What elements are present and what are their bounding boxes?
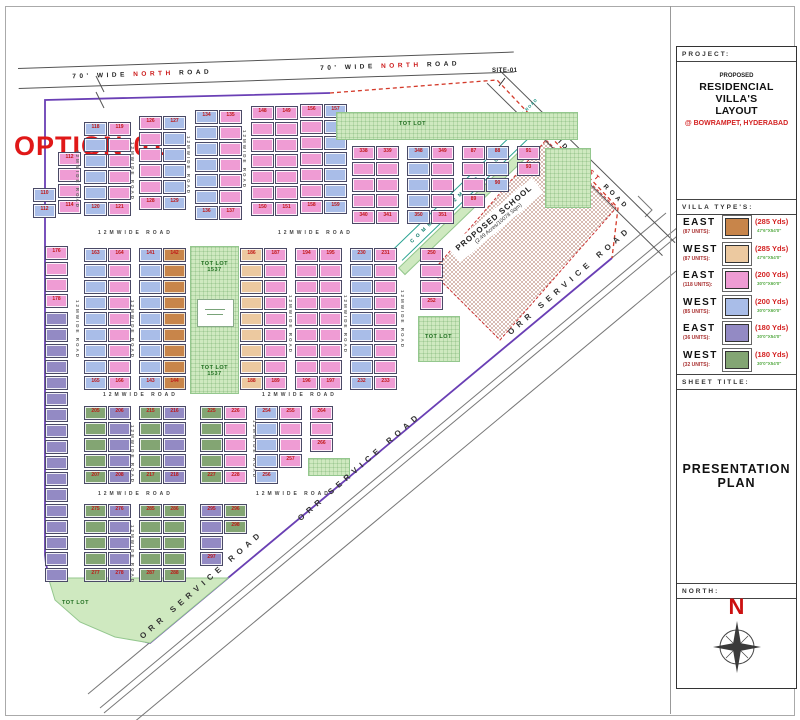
internal-road-label: 12MWIDE ROAD — [98, 491, 173, 497]
villa-plot-pink — [275, 138, 298, 152]
legend-row: WEST(85 UNITS):(200 Yds)30'0"X60'0" — [677, 295, 796, 322]
legend-direction: WEST — [683, 244, 718, 255]
villa-plot-pink: 228 — [224, 470, 247, 484]
plot-number: 277 — [85, 570, 106, 576]
plot-number: 250 — [421, 250, 442, 256]
legend-yards: (285 Yds) — [755, 217, 788, 226]
villa-plot-purple: 218 — [163, 470, 186, 484]
villa-plot-orange — [163, 296, 186, 310]
villa-plot-green: 217 — [139, 470, 162, 484]
tot-lot-1537-label-bottom: TOT LOT1537 — [191, 365, 238, 377]
villa-plot-pink — [108, 328, 131, 342]
villa-plot-blue: 134 — [195, 110, 218, 124]
villa-plot-pink — [374, 312, 397, 326]
villa-plot-green — [163, 552, 186, 566]
villa-plot-tan — [240, 264, 263, 278]
villa-plot-blue — [163, 164, 186, 178]
plot-number: 91 — [518, 148, 539, 154]
villa-plot-blue — [407, 178, 430, 192]
villa-plot-blue — [255, 438, 278, 452]
villa-plot-green — [163, 536, 186, 550]
north-road-label-2: 70' WIDE NORTH ROAD — [320, 60, 460, 72]
villa-plot-blue — [84, 344, 107, 358]
plot-number: 129 — [164, 198, 185, 204]
villa-plot-pink — [251, 170, 274, 184]
villa-plot-purple — [45, 552, 68, 566]
villa-plot-green — [139, 438, 162, 452]
villa-plot-purple: 208 — [108, 470, 131, 484]
villa-plot-blue — [139, 360, 162, 374]
villa-plot-pink — [139, 132, 162, 146]
villa-plot-orange: 142 — [163, 248, 186, 262]
internal-road-label-vertical: 12MWIDE ROAD — [130, 425, 135, 484]
villa-plot-pink: 158 — [300, 200, 323, 214]
plot-number: 298 — [225, 522, 246, 528]
villa-plot-pink — [300, 120, 323, 134]
plot-number: 275 — [85, 506, 106, 512]
plot-number: 195 — [320, 250, 341, 256]
villa-plot-green — [200, 438, 223, 452]
villa-plot-purple — [45, 440, 68, 454]
villa-plot-green — [139, 552, 162, 566]
villa-plot-pink — [300, 184, 323, 198]
villa-plot-pink: 126 — [139, 116, 162, 130]
legend-direction: WEST — [683, 297, 718, 308]
villa-plot-green — [139, 454, 162, 468]
villa-plot-blue — [139, 264, 162, 278]
villa-plot-purple — [200, 520, 223, 534]
villa-plot-pink: 178 — [45, 294, 68, 308]
villa-plot-purple — [45, 376, 68, 390]
villa-plot-blue: 256 — [255, 470, 278, 484]
villa-plot-green — [84, 422, 107, 436]
villa-plot-pink — [224, 438, 247, 452]
villa-plot-pink — [219, 158, 242, 172]
villa-plot-green: 225 — [200, 406, 223, 420]
villa-plot-pink: 151 — [275, 202, 298, 216]
legend-units: (87 UNITS): — [683, 229, 710, 235]
villa-plot-pink — [374, 280, 397, 294]
plot-number: 231 — [375, 250, 396, 256]
plot-number: 159 — [325, 202, 346, 208]
plot-number: 276 — [109, 506, 130, 512]
villa-plot-blue — [324, 184, 347, 198]
plot-number: 127 — [164, 118, 185, 124]
tot-lot-label: TOT LOT — [399, 121, 426, 127]
legend-yards: (285 Yds) — [755, 244, 788, 253]
legend-swatch — [725, 271, 749, 289]
plot-number: 151 — [276, 204, 297, 210]
villa-plot-pink — [462, 178, 485, 192]
plot-number: 165 — [85, 378, 106, 384]
villa-plot-pink — [108, 186, 131, 200]
villa-plot-pink: 91 — [517, 146, 540, 160]
villa-plot-blue — [350, 360, 373, 374]
legend-yards: (180 Yds) — [755, 323, 788, 332]
legend-swatch — [725, 298, 749, 316]
road-name-part: NORTH — [381, 62, 422, 70]
plot-number: 350 — [408, 212, 429, 218]
sheet-title: PRESENTATION PLAN — [677, 462, 796, 490]
villa-plot-pink — [319, 344, 342, 358]
legend-yards: (200 Yds) — [755, 270, 788, 279]
villa-plot-pink — [374, 360, 397, 374]
legend-yards: (180 Yds) — [755, 350, 788, 359]
villa-plot-green: 298 — [224, 520, 247, 534]
plot-number: 119 — [109, 124, 130, 130]
plot-number: 338 — [353, 148, 374, 154]
villa-plot-purple: 295 — [200, 504, 223, 518]
villa-plot-pink — [251, 138, 274, 152]
tot-lot-bottom-label: TOT LOT — [62, 600, 89, 606]
road-name-part: ROAD — [174, 69, 213, 77]
legend-direction: EAST — [683, 217, 716, 228]
villa-plot-blue: 127 — [163, 116, 186, 130]
villa-plot-orange — [163, 328, 186, 342]
villa-plot-green — [84, 520, 107, 534]
road-name-part: ROAD — [422, 60, 461, 68]
villa-plot-green — [200, 422, 223, 436]
villa-plot-pink: 87 — [462, 146, 485, 160]
villa-plot-purple — [45, 536, 68, 550]
legend-dimensions: 30'0"X54'0" — [757, 361, 781, 366]
internal-road-label-vertical: 12MWIDE ROAD — [400, 290, 405, 349]
title-block: PROJECT: PROPOSED RESIDENCIAL VILLA'S LA… — [676, 46, 797, 689]
plot-number: 149 — [276, 108, 297, 114]
plot-number: 228 — [225, 472, 246, 478]
plot-number: 254 — [256, 408, 277, 414]
villa-plot-tan: 188 — [240, 376, 263, 390]
villa-types-label: VILLA TYPE'S: — [677, 199, 796, 215]
plot-number: 156 — [301, 106, 322, 112]
villa-plot-green: 207 — [84, 470, 107, 484]
villa-plot-pink: 166 — [108, 376, 131, 390]
villa-plot-pink: 189 — [264, 376, 287, 390]
villa-plot-pink — [108, 264, 131, 278]
villa-plot-purple — [108, 536, 131, 550]
villa-plot-blue — [350, 280, 373, 294]
villa-plot-blue — [84, 264, 107, 278]
plot-number: 217 — [140, 472, 161, 478]
plot-number: 215 — [140, 408, 161, 414]
villa-plot-blue: 112 — [33, 204, 56, 218]
plot-number: 286 — [164, 506, 185, 512]
villa-plot-purple — [45, 312, 68, 326]
villa-plot-purple — [45, 328, 68, 342]
villa-plot-pink: 135 — [219, 110, 242, 124]
legend-units: (118 UNITS): — [683, 282, 712, 288]
plot-number: 340 — [353, 212, 374, 218]
villa-plot-blue — [195, 190, 218, 204]
villa-plot-green — [163, 520, 186, 534]
legend-swatch — [725, 351, 749, 369]
plot-number: 233 — [375, 378, 396, 384]
plot-number: 257 — [280, 456, 301, 462]
villa-plot-blue — [139, 312, 162, 326]
villa-plot-pink — [219, 174, 242, 188]
villa-plot-blue — [195, 142, 218, 156]
villa-plot-purple — [108, 438, 131, 452]
villa-plot-blue — [84, 280, 107, 294]
compass-n-letter: N — [677, 597, 796, 617]
legend-row: EAST(36 UNITS):(180 Yds)30'0"X54'0" — [677, 321, 796, 348]
villa-plot-purple — [45, 568, 68, 582]
internal-road-label-vertical: 12MWIDE ROAD — [252, 420, 257, 479]
villa-plot-blue: 254 — [255, 406, 278, 420]
villa-plot-blue — [84, 296, 107, 310]
villa-plot-pink: 187 — [264, 248, 287, 262]
plot-number: 208 — [109, 472, 130, 478]
plot-number: 296 — [225, 506, 246, 512]
legend-swatch — [725, 218, 749, 236]
villa-plot-pink: 233 — [374, 376, 397, 390]
villa-plot-blue — [350, 264, 373, 278]
legend-dimensions: 47'6"X54'0" — [757, 255, 781, 260]
plot-number: 266 — [311, 440, 332, 446]
villa-plot-pink — [420, 264, 443, 278]
plot-number: 88 — [487, 148, 508, 154]
villa-plot-pink: 89 — [462, 194, 485, 208]
plot-number: 351 — [432, 212, 453, 218]
villa-plot-pink: 231 — [374, 248, 397, 262]
plot-number: 339 — [377, 148, 398, 154]
plot-number: 230 — [351, 250, 372, 256]
villa-plot-tan — [240, 280, 263, 294]
villa-plot-pink — [319, 280, 342, 294]
villa-plot-pink — [251, 154, 274, 168]
villa-plot-pink — [264, 360, 287, 374]
villa-plot-pink — [295, 264, 318, 278]
plot-number: 144 — [164, 378, 185, 384]
villa-plot-blue — [84, 138, 107, 152]
villa-plot-blue: 118 — [84, 122, 107, 136]
villa-plot-pink: 338 — [352, 146, 375, 160]
villa-plot-purple — [45, 392, 68, 406]
villa-plot-pink — [275, 170, 298, 184]
plot-number: 205 — [85, 408, 106, 414]
villa-plot-pink: 128 — [139, 196, 162, 210]
plot-number: 136 — [196, 208, 217, 214]
tot-lot-1537-label-top: TOT LOT1537 — [191, 261, 238, 273]
legend-row: EAST(87 UNITS):(285 Yds)47'6"X54'0" — [677, 215, 796, 242]
villa-plot-purple — [45, 360, 68, 374]
project-label: PROJECT: — [677, 47, 796, 62]
villa-plot-pink — [108, 360, 131, 374]
villa-plot-green: 285 — [139, 504, 162, 518]
internal-road-label-vertical: 12MWIDE ROAD — [186, 136, 191, 195]
plot-number: 135 — [220, 112, 241, 118]
villa-plot-pink: 250 — [420, 248, 443, 262]
villa-plot-pink — [376, 178, 399, 192]
villa-plot-pink — [319, 328, 342, 342]
villa-plot-pink — [264, 264, 287, 278]
internal-road-label-vertical: 12MWIDE ROAD — [75, 300, 80, 359]
plot-number: 216 — [164, 408, 185, 414]
villa-plot-blue — [195, 174, 218, 188]
villa-plot-orange — [163, 360, 186, 374]
villa-plot-blue — [139, 296, 162, 310]
villa-plot-pink — [352, 194, 375, 208]
villa-plot-blue — [407, 162, 430, 176]
villa-plot-pink: 341 — [376, 210, 399, 224]
villa-plot-pink — [431, 194, 454, 208]
villa-plot-blue — [84, 360, 107, 374]
plot-number: 137 — [220, 208, 241, 214]
plot-number: 285 — [140, 506, 161, 512]
villa-plot-pink: 257 — [279, 454, 302, 468]
villa-plot-purple — [163, 454, 186, 468]
legend-direction: EAST — [683, 323, 716, 334]
villa-plot-blue: 88 — [486, 146, 509, 160]
villa-plot-pink — [295, 344, 318, 358]
villa-plot-pink — [300, 168, 323, 182]
plot-number: 227 — [201, 472, 222, 478]
villa-plot-pink — [376, 194, 399, 208]
villa-plot-blue: 141 — [139, 248, 162, 262]
villa-plot-blue — [84, 328, 107, 342]
plot-number: 278 — [109, 570, 130, 576]
project-location: @ BOWRAMPET, HYDERABAD — [677, 120, 796, 127]
villa-plot-purple — [45, 504, 68, 518]
plot-number: 158 — [301, 202, 322, 208]
villa-plot-pink — [295, 280, 318, 294]
compass-rose-icon — [709, 617, 765, 677]
internal-road-label: 12MWIDE ROAD — [262, 392, 337, 398]
legend-yards: (200 Yds) — [755, 297, 788, 306]
villa-plot-blue — [486, 162, 509, 176]
plot-number: 295 — [201, 506, 222, 512]
plot-number: 164 — [109, 250, 130, 256]
legend-direction: WEST — [683, 350, 718, 361]
villa-plot-pink — [139, 164, 162, 178]
plot-number: 341 — [377, 212, 398, 218]
road-name-part: 70' WIDE — [72, 71, 133, 80]
villa-plot-pink — [295, 360, 318, 374]
plot-number: 110 — [34, 190, 55, 196]
villa-plot-pink — [224, 454, 247, 468]
villa-plot-blue — [255, 454, 278, 468]
villa-plot-pink — [139, 148, 162, 162]
villa-plot-green — [84, 438, 107, 452]
villa-plot-purple — [200, 536, 223, 550]
villa-plot-blue: 232 — [350, 376, 373, 390]
villa-plot-blue — [324, 152, 347, 166]
villa-plot-pink: 340 — [352, 210, 375, 224]
villa-plot-purple: 206 — [108, 406, 131, 420]
internal-road-label-vertical: 12MWIDE ROAD — [75, 150, 80, 209]
plot-number: 90 — [487, 180, 508, 186]
villa-plot-pink: 164 — [108, 248, 131, 262]
villa-plot-blue: 143 — [139, 376, 162, 390]
plot-number: 287 — [140, 570, 161, 576]
villa-plot-purple — [45, 424, 68, 438]
villa-plot-blue — [255, 422, 278, 436]
villa-plot-pink: 264 — [310, 406, 333, 420]
villa-plot-blue: 163 — [84, 248, 107, 262]
villa-plot-green: 215 — [139, 406, 162, 420]
villa-plot-orange: 144 — [163, 376, 186, 390]
villa-plot-pink — [319, 296, 342, 310]
plot-number: 163 — [85, 250, 106, 256]
internal-road-label-vertical: 12MWIDE ROAD — [130, 525, 135, 584]
project-line-name: RESIDENCIAL VILLA'S — [677, 81, 796, 105]
villa-plot-blue — [195, 158, 218, 172]
villa-plot-green: 288 — [163, 568, 186, 582]
villa-plot-pink — [295, 312, 318, 326]
plot-number: 143 — [140, 378, 161, 384]
villa-plot-pink — [251, 122, 274, 136]
plot-number: 142 — [164, 250, 185, 256]
villa-plot-blue: 90 — [486, 178, 509, 192]
tot-lot-area: TOT LOT — [418, 316, 460, 362]
villa-plot-blue — [84, 154, 107, 168]
plot-number: 225 — [201, 408, 222, 414]
drawing-sheet: 70' WIDE NORTH ROAD 70' WIDE NORTH ROAD … — [0, 0, 800, 720]
internal-road-label: 12MWIDE ROAD — [98, 230, 173, 236]
plot-number: 348 — [408, 148, 429, 154]
villa-plot-pink — [224, 422, 247, 436]
villa-plot-pink: 226 — [224, 406, 247, 420]
villa-plot-orange — [163, 280, 186, 294]
legend-dimensions: 30'0"X54'0" — [757, 334, 781, 339]
villa-plot-purple: 216 — [163, 406, 186, 420]
villa-plot-purple — [163, 422, 186, 436]
villa-plot-pink: 266 — [310, 438, 333, 452]
plot-number: 197 — [320, 378, 341, 384]
villa-plot-tan — [240, 360, 263, 374]
plot-number: 252 — [421, 298, 442, 304]
villa-plot-blue — [324, 168, 347, 182]
villa-plot-pink: 121 — [108, 202, 131, 216]
villa-plot-tan — [240, 296, 263, 310]
legend-swatch — [725, 324, 749, 342]
villa-plot-pink: 197 — [319, 376, 342, 390]
villa-plot-blue: 129 — [163, 196, 186, 210]
villa-plot-pink — [108, 296, 131, 310]
villa-plot-pink — [275, 154, 298, 168]
plot-number: 93 — [518, 164, 539, 170]
villa-plot-green — [84, 454, 107, 468]
legend-units: (85 UNITS): — [683, 309, 710, 315]
plot-number: 120 — [85, 204, 106, 210]
villa-plot-pink — [420, 280, 443, 294]
plot-number: 186 — [241, 250, 262, 256]
plot-number: 206 — [109, 408, 130, 414]
villa-plot-blue — [407, 194, 430, 208]
villa-plot-green — [84, 536, 107, 550]
villa-plot-pink: 176 — [45, 246, 68, 260]
villa-plot-purple — [45, 488, 68, 502]
project-line-layout: LAYOUT — [677, 105, 796, 117]
villa-plot-green: 287 — [139, 568, 162, 582]
villa-plot-blue — [163, 132, 186, 146]
villa-plot-purple — [108, 454, 131, 468]
villa-plot-green — [139, 520, 162, 534]
villa-plot-pink — [295, 328, 318, 342]
legend-direction: EAST — [683, 270, 716, 281]
villa-plot-purple — [45, 456, 68, 470]
plot-number: 176 — [46, 248, 67, 254]
plot-number: 297 — [201, 554, 222, 560]
villa-plot-blue: 350 — [407, 210, 430, 224]
villa-plot-tan — [240, 344, 263, 358]
villa-plot-blue — [139, 344, 162, 358]
villa-plot-tan — [240, 328, 263, 342]
villa-plot-pink — [251, 186, 274, 200]
plot-number: 134 — [196, 112, 217, 118]
villa-plot-pink: 149 — [275, 106, 298, 120]
villa-plot-pink: 349 — [431, 146, 454, 160]
